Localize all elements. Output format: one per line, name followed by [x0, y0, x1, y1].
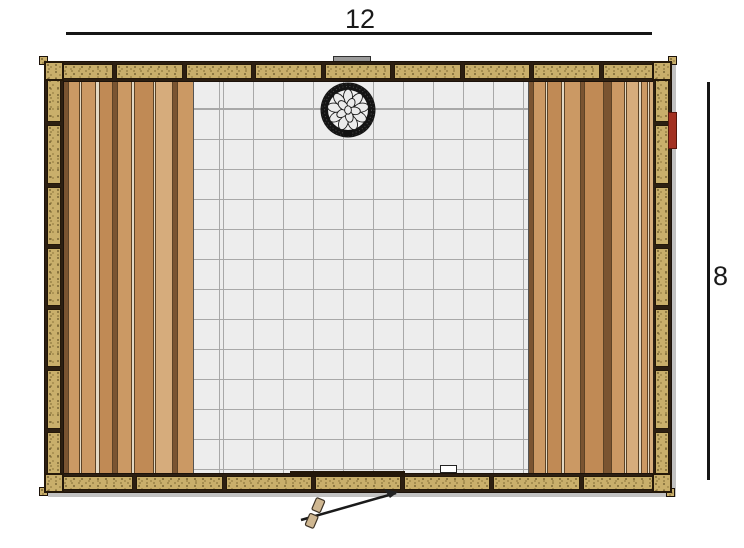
bench-plank [584, 82, 602, 473]
door-panel-line [301, 493, 396, 520]
wall-panel-segment [325, 64, 391, 79]
door-handle-icon [305, 497, 325, 528]
wall-panel-segment [47, 370, 61, 428]
wall-panel-segment [47, 187, 61, 245]
dimension-width-line [66, 32, 652, 35]
wall-panel-segment [136, 476, 222, 490]
wall-panel-segment [464, 64, 530, 79]
door-threshold [290, 471, 405, 477]
floor-plan-canvas: 12 8 [0, 0, 744, 548]
dimension-height-line [707, 82, 710, 480]
wall-top [44, 61, 672, 82]
corner-post-top-right [652, 61, 672, 81]
dimension-height-label: 8 [713, 263, 728, 290]
wall-panel-segment [116, 64, 182, 79]
wall-panel-segment [315, 476, 401, 490]
wall-panel-segment [394, 64, 460, 79]
wall-left [44, 61, 64, 493]
bench-plank [626, 82, 638, 473]
wall-panel-segment [226, 476, 312, 490]
wall-panel-segment [186, 64, 252, 79]
bench-plank [649, 82, 653, 473]
wall-panel-segment [655, 248, 669, 306]
wall-panel-segment [493, 476, 579, 490]
bench-plank [611, 82, 624, 473]
bench-plank [68, 82, 79, 473]
sauna-plan [44, 61, 672, 493]
bench-plank [603, 82, 611, 473]
sauna-interior [64, 82, 653, 473]
wall-panel-segment [47, 125, 61, 183]
wall-panel-segment [255, 64, 321, 79]
wall-panel-segment [655, 187, 669, 245]
wall-panel-segment [533, 64, 599, 79]
wall-panel-segment [655, 309, 669, 367]
bench-plank [81, 82, 95, 473]
bench-plank [177, 82, 193, 473]
bench-plank [564, 82, 580, 473]
sauna-heater-icon [318, 80, 378, 140]
tile-floor [193, 82, 529, 473]
bench-plank [533, 82, 545, 473]
wall-panel-segment [404, 476, 490, 490]
bench-plank [117, 82, 131, 473]
wall-panel-segment [655, 370, 669, 428]
dimension-width-label: 12 [330, 6, 390, 33]
bench-plank [134, 82, 153, 473]
bench-plank [547, 82, 561, 473]
floor-drain [440, 465, 457, 473]
wall-panel-segment [47, 309, 61, 367]
bench-plank [99, 82, 112, 473]
wall-panel-segment [47, 248, 61, 306]
door-hinge-red-marker [668, 112, 677, 149]
corner-post-bottom-right [652, 473, 672, 493]
bench-left-planks [64, 82, 193, 473]
bench-plank [155, 82, 171, 473]
wall-panel-segment [655, 125, 669, 183]
corner-post-bottom-left [44, 473, 64, 493]
bench-right-planks [529, 82, 653, 473]
corner-post-top-left [44, 61, 64, 81]
